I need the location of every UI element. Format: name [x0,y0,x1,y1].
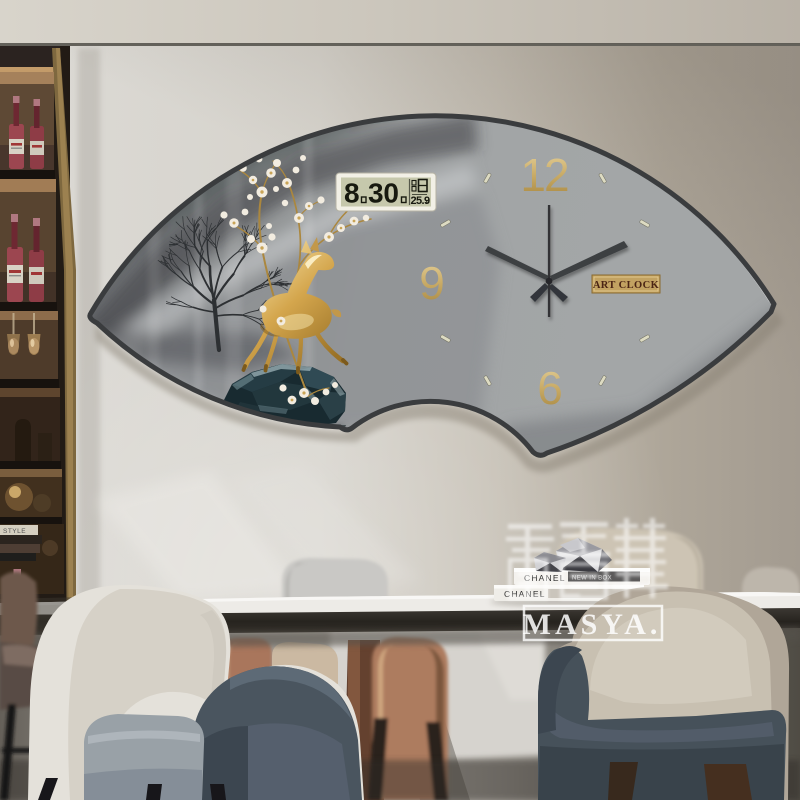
svg-text:12: 12 [520,149,568,201]
svg-text:9: 9 [419,257,445,309]
svg-text:8: 8 [344,178,360,209]
svg-text:c: c [426,199,430,206]
svg-text:MASYA.: MASYA. [523,608,662,641]
svg-text:6: 6 [537,362,563,414]
svg-text:ART CLOCK: ART CLOCK [593,280,660,291]
svg-text:30: 30 [368,178,399,209]
svg-text:STYLE: STYLE [3,528,26,535]
